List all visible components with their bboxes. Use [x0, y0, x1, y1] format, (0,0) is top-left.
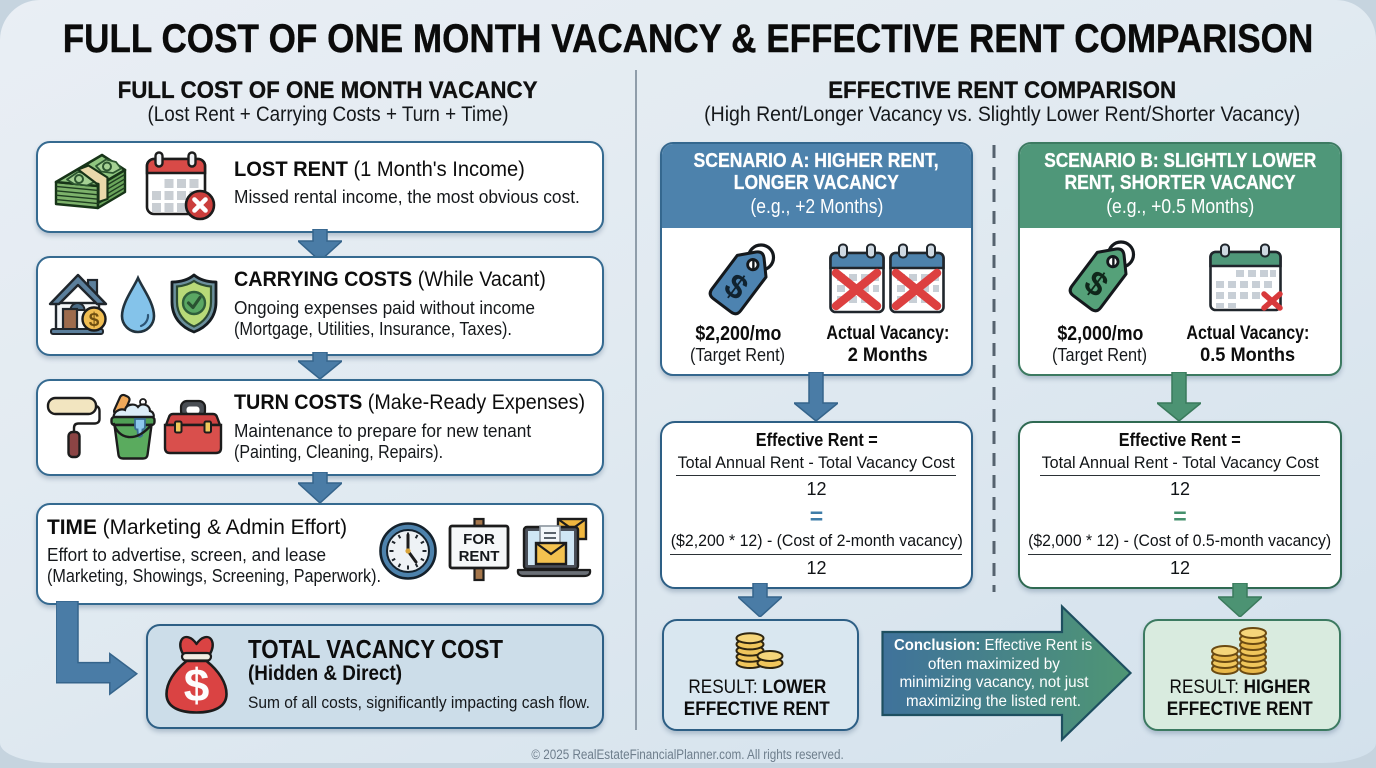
svg-text:$: $	[184, 659, 210, 711]
svg-text:RENT: RENT	[459, 548, 500, 565]
svg-text:$: $	[89, 310, 100, 331]
svg-text:FOR: FOR	[463, 531, 495, 548]
